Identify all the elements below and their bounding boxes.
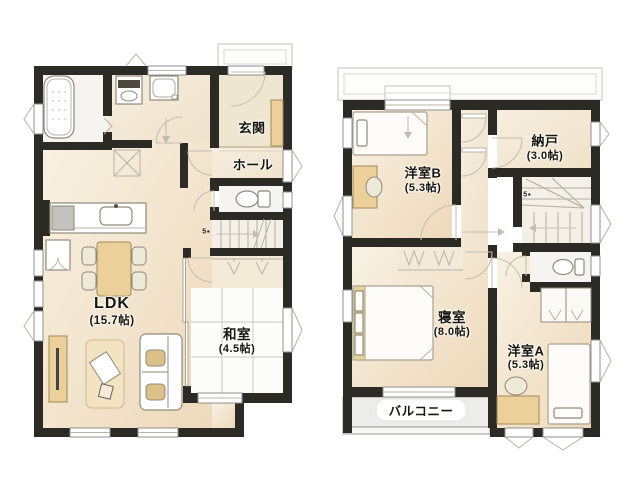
room-label-balcony: バルコニー bbox=[377, 400, 466, 421]
room-size-washitsu: (4.5帖) bbox=[219, 340, 256, 356]
room-label-genkan: 玄関 bbox=[238, 118, 265, 137]
tv-board bbox=[49, 336, 67, 402]
room-size-bedroom: (8.0帖) bbox=[434, 323, 471, 339]
room-size-western-a: (5.3帖) bbox=[508, 356, 545, 372]
room-size-ldk: (15.7帖) bbox=[89, 312, 134, 328]
floorplan-page: 玄関 ホール LDK (15.7帖) 和室 (4.5帖) 洋室B (5.3帖) … bbox=[0, 0, 640, 480]
washing-machine bbox=[150, 76, 178, 100]
toilet-1f bbox=[236, 191, 270, 207]
room-size-western-b: (5.3帖) bbox=[405, 179, 442, 195]
toilet-2f bbox=[553, 259, 584, 275]
western-a-closet bbox=[541, 288, 591, 322]
bed-western-a bbox=[548, 344, 590, 424]
vanity-sink bbox=[116, 76, 142, 104]
room-label-ldk: LDK bbox=[94, 295, 130, 313]
floorplan-drawing bbox=[0, 0, 640, 480]
stair-marker-1f: 5 bbox=[202, 229, 209, 236]
roof-outline bbox=[338, 68, 602, 100]
rug-and-table bbox=[86, 340, 124, 408]
refrigerator bbox=[46, 240, 70, 270]
bathtub bbox=[44, 76, 74, 138]
kitchen-counter bbox=[50, 203, 146, 233]
floor1-plan bbox=[24, 44, 302, 437]
room-size-storeroom: (3.0帖) bbox=[527, 147, 564, 163]
room-label-hall: ホール bbox=[233, 155, 274, 174]
shoe-cabinet bbox=[271, 100, 283, 146]
sofa bbox=[140, 334, 182, 410]
bed-master bbox=[353, 286, 433, 360]
floor2-plan bbox=[334, 68, 611, 450]
stair-marker-2f: 5 bbox=[523, 192, 530, 199]
bed-western-b bbox=[353, 112, 427, 155]
